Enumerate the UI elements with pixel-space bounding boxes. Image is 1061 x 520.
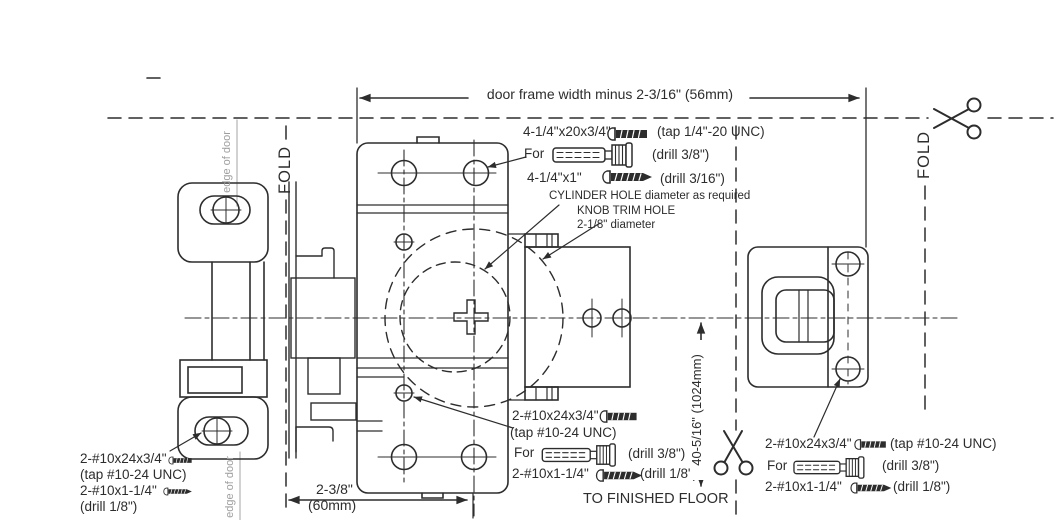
lock-case-edge-profile <box>289 182 356 458</box>
edge-of-door-label-top: edge of door <box>221 127 235 197</box>
fastener-for-center: For <box>514 446 534 461</box>
machine-screw-icon <box>600 411 636 422</box>
anchor-icon <box>553 143 632 167</box>
strike-plate-drawing <box>748 247 868 387</box>
fastener-wood-note-center: (drill 1/8") <box>640 467 697 482</box>
cylinder-hole-label: CYLINDER HOLE diameter as required <box>549 190 750 203</box>
wood-screw-icon <box>851 483 891 493</box>
machine-screw-icon <box>855 440 886 450</box>
fastener-machine-qty-right: 2-#10x24x3/4" <box>765 437 852 452</box>
fastener-wood-note-left: (drill 1/8") <box>80 500 137 515</box>
installation-template-page: door frame width minus 2-3/16" (56mm) FO… <box>0 0 1061 520</box>
knob-trim-hole-label: KNOB TRIM HOLE <box>577 205 675 218</box>
backset-inches-label: 2-3/8" <box>316 482 353 497</box>
backset-mm-label: (60mm) <box>308 498 356 513</box>
leader-center-screw-hole <box>414 397 513 428</box>
machine-screw-icon <box>608 128 647 140</box>
spindle-cross-mark <box>454 300 488 334</box>
fastener-wood-qty-left: 2-#10x1-1/4" <box>80 484 157 499</box>
fastener-wood-note-top: (drill 3/16") <box>660 172 725 187</box>
fastener-machine-qty-center: 2-#10x24x3/4" <box>512 409 599 424</box>
knob-trim-diameter-label: 2-1/8" diameter <box>577 219 655 232</box>
fastener-wood-qty-top: 4-1/4"x1" <box>527 171 582 186</box>
fastener-machine-note-right: (tap #10-24 UNC) <box>890 437 997 452</box>
floor-height-label: 40-5/16" (1024mm) <box>690 340 706 480</box>
anchor-icon <box>542 444 615 466</box>
top-alignment-tab <box>417 137 439 143</box>
scissors-icon-bottom <box>715 431 753 475</box>
edge-of-door-label-bottom: edge of door <box>224 452 238 520</box>
leader-left-screw-hole <box>170 433 201 451</box>
leader-cylinder-hole <box>485 205 559 269</box>
fastener-machine-qty-left: 2-#10x24x3/4" <box>80 452 167 467</box>
leader-top-hole <box>488 157 526 167</box>
fold-label-left: FOLD <box>276 140 296 200</box>
to-finished-floor-label: TO FINISHED FLOOR <box>583 492 729 508</box>
wood-screw-icon <box>164 488 192 495</box>
door-frame-width-label: door frame width minus 2-3/16" (56mm) <box>470 87 750 102</box>
wood-screw-icon <box>603 171 652 183</box>
fastener-for-right: For <box>767 459 787 474</box>
fastener-machine-qty-top: 4-1/4"x20x3/4" <box>523 125 611 140</box>
fastener-wood-qty-right: 2-#10x1-1/4" <box>765 480 842 495</box>
cylinder-hole-circle <box>400 262 510 372</box>
fastener-machine-note-center: (tap #10-24 UNC) <box>510 426 617 441</box>
fastener-machine-note-left: (tap #10-24 UNC) <box>80 468 187 483</box>
wood-screw-icon <box>597 470 643 481</box>
fastener-wood-qty-center: 2-#10x1-1/4" <box>512 467 589 482</box>
anchor-icon <box>794 457 864 478</box>
fastener-anchor-note-right: (drill 3/8") <box>882 459 939 474</box>
left-lock-side-view <box>178 183 268 459</box>
fastener-wood-note-right: (drill 1/8") <box>893 480 950 495</box>
latch-case-outline <box>508 234 631 400</box>
fold-label-right: FOLD <box>915 125 935 185</box>
fastener-anchor-note-center: (drill 3/8") <box>628 447 685 462</box>
fastener-machine-note-top: (tap 1/4"-20 UNC) <box>657 125 765 140</box>
fastener-for-top: For <box>524 147 544 162</box>
fastener-anchor-note-top: (drill 3/8") <box>652 148 709 163</box>
scissors-icon <box>934 99 981 139</box>
